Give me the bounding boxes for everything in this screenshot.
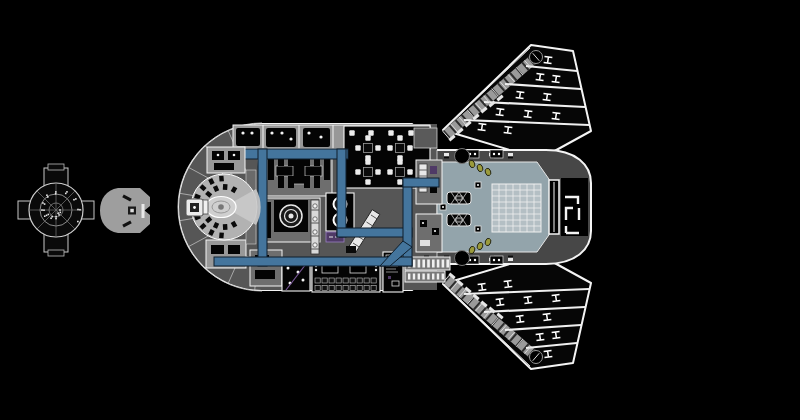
station-map-thumbnail: [18, 164, 94, 256]
upper-wing: [443, 45, 591, 159]
bay-vehicle: [447, 214, 471, 226]
tie-down: [475, 182, 481, 188]
starship-deck-plan: [178, 45, 591, 369]
nose-cabin-top: [207, 147, 245, 173]
ship-silhouette-icon: [100, 188, 150, 233]
lower-wing: [443, 255, 591, 369]
deck-plan-canvas: [0, 0, 800, 420]
neck-room: [414, 128, 437, 148]
bay-vehicle: [447, 192, 471, 204]
tie-down: [440, 204, 446, 210]
wing-joint-hatch: [455, 251, 470, 266]
blueprint-stage: [0, 0, 800, 420]
cargo-grid: [492, 184, 541, 232]
ladder-shaft: [311, 200, 319, 254]
tie-down: [475, 226, 481, 232]
aft-cabin-bottom: [416, 214, 442, 252]
nose-airlock: [186, 199, 203, 216]
wing-joint-hatch: [455, 149, 470, 164]
stern-bay-doors: [549, 178, 588, 236]
